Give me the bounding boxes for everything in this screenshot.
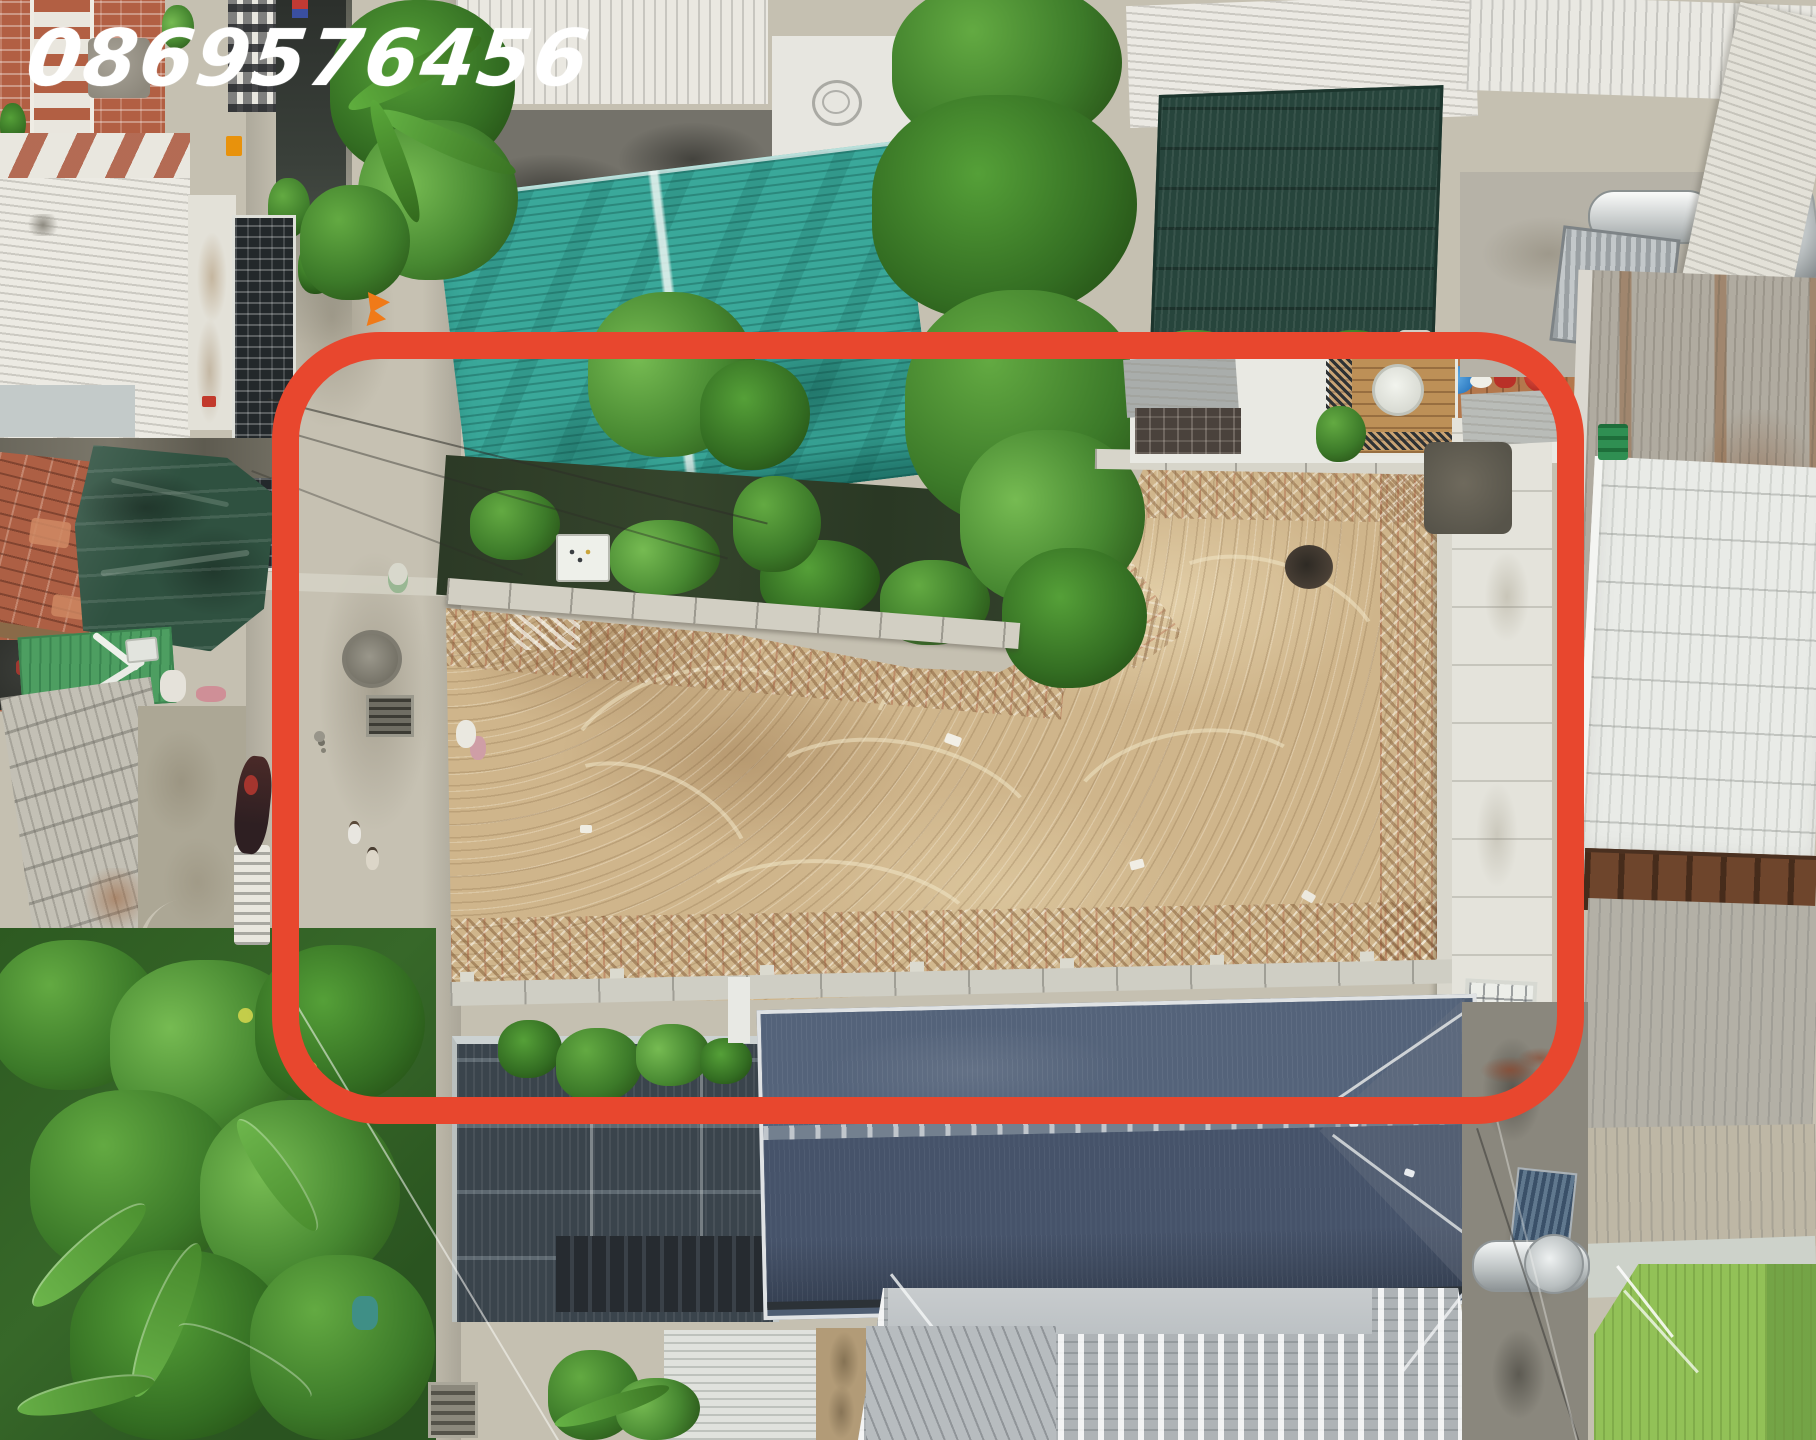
light-tile-patch [28, 517, 71, 548]
highlight-annotation [272, 332, 1584, 1124]
rope-coil [822, 90, 850, 114]
dark-roof-fringe [556, 1236, 768, 1312]
white-box-on-shed [125, 636, 159, 663]
green-crate-stack [1598, 424, 1628, 460]
white-sack [160, 670, 186, 702]
grey-corrugated-roof-east [1580, 898, 1816, 1146]
pink-cloth [196, 686, 226, 702]
motorbike-red-glint [244, 775, 258, 795]
aerial-photo: 0869576456 [0, 0, 1816, 1440]
green-sport-court-roof [1594, 1264, 1816, 1440]
phone-watermark: 0869576456 [19, 14, 733, 124]
tan-corrugated-roof [1583, 1124, 1816, 1250]
orange-box [226, 136, 242, 156]
drain-grate-south [428, 1382, 478, 1438]
stained-white-wall [188, 195, 236, 430]
roof-stain [26, 214, 60, 236]
yellow-flowers [238, 1008, 253, 1023]
teal-bin [352, 1296, 378, 1330]
fan-ribbed-roof-section [866, 1326, 1056, 1440]
pale-concrete-floor [0, 385, 135, 437]
red-object [202, 396, 216, 407]
tree-canopy [872, 95, 1137, 320]
white-drain-grate [234, 845, 270, 945]
bright-white-corrugated-roof [1573, 456, 1816, 880]
